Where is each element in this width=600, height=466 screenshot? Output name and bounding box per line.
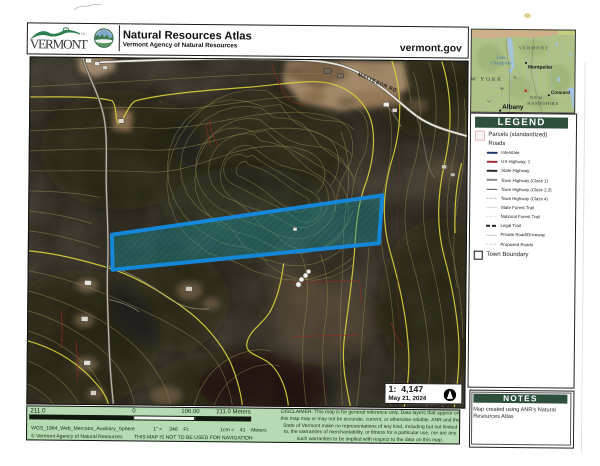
svg-text:Montpelier: Montpelier [527,64,552,70]
svg-text:VERMONT: VERMONT [30,36,88,52]
svg-text:Concord: Concord [550,90,569,95]
svg-text:VERMONT: VERMONT [518,45,548,50]
svg-text:Lake: Lake [496,56,506,61]
svg-text:TM: TM [81,32,86,36]
svg-text:HAMPSHIRE: HAMPSHIRE [527,100,559,105]
svg-text:W YORK: W YORK [471,76,503,82]
svg-text:Albany: Albany [502,103,524,110]
svg-text:Champlain: Champlain [490,61,512,66]
svg-text:NEW: NEW [529,95,543,100]
